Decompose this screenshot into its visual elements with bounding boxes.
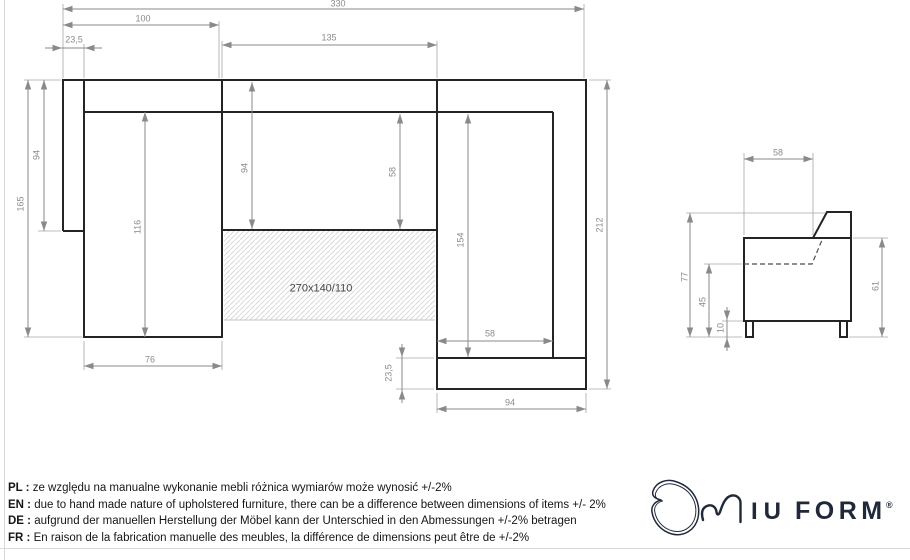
note-lang-en: EN : (8, 499, 34, 511)
dim-label-left-seat-width: 76 (145, 356, 155, 365)
dim-label-right-total-depth: 212 (596, 217, 605, 232)
dim-label-left-arm-width: 23,5 (65, 36, 83, 45)
sleeping-area-size-label: 270x140/110 (290, 284, 353, 295)
dim-label-side-leg-height: 10 (717, 323, 726, 333)
dim-label-center-depth: 94 (241, 163, 250, 173)
dim-label-side-seat-height: 45 (699, 297, 708, 307)
miuform-bean-icon (647, 479, 701, 537)
sleeping-area-hatch (224, 231, 435, 320)
dim-label-side-body-height: 61 (872, 281, 881, 291)
note-line-pl: PL : ze względu na manualne wykonanie me… (8, 480, 606, 497)
sofa-leg-left (746, 321, 753, 337)
note-lang-fr: FR : (8, 532, 34, 544)
note-line-fr: FR : En raison de la fabrication manuell… (8, 530, 606, 547)
dim-label-left-total-depth: 165 (17, 196, 26, 211)
dim-label-left-seat-length: 116 (134, 220, 143, 234)
note-text-de: aufgrund der manuellen Herstellung der M… (34, 515, 576, 527)
dim-label-total-width: 330 (330, 0, 345, 9)
dim-label-left-section-width: 100 (135, 15, 150, 24)
seat-level-dashed-line (744, 240, 822, 264)
note-text-pl: ze względu na manualne wykonanie mebli r… (33, 482, 452, 494)
dim-label-side-seat-depth: 58 (773, 149, 783, 158)
dimension-lines (28, 9, 882, 409)
dim-label-side-total-height: 77 (681, 272, 690, 282)
note-lang-pl: PL : (8, 482, 33, 494)
page-left-edge (4, 0, 5, 560)
extension-lines (24, 4, 888, 413)
dim-label-front-band-depth: 23,5 (385, 364, 394, 382)
dim-label-left-back-depth: 94 (33, 150, 42, 160)
side-view-drawing (744, 212, 851, 337)
note-text-en: due to hand made nature of upholstered f… (34, 499, 606, 511)
dim-label-center-seat-depth: 58 (389, 167, 398, 177)
note-text-fr: En raison de la fabrication manuelle des… (34, 532, 530, 544)
miuform-wave-m-glyph (700, 492, 746, 524)
note-lang-de: DE : (8, 515, 34, 527)
furniture-dimension-sheet: 330 100 23,5 135 165 94 116 94 58 154 58… (0, 0, 910, 560)
dim-label-right-seat-length: 154 (457, 232, 466, 247)
registered-trademark-icon: ® (886, 501, 893, 510)
plan-view-drawing (63, 80, 586, 389)
sofa-leg-right (840, 321, 847, 337)
page-bottom-edge (0, 548, 910, 549)
dim-label-right-seat-width: 58 (485, 330, 495, 339)
logo-wordmark-iu: IU (751, 500, 787, 524)
note-line-de: DE : aufgrund der manuellen Herstellung … (8, 513, 606, 530)
dim-label-center-width: 135 (321, 34, 336, 43)
dim-label-right-section-width: 94 (505, 399, 515, 408)
note-line-en: EN : due to hand made nature of upholste… (8, 497, 606, 514)
logo-wordmark-form: FORM (795, 499, 887, 524)
tolerance-notes: PL : ze względu na manualne wykonanie me… (8, 480, 606, 547)
technical-drawing (0, 0, 910, 560)
